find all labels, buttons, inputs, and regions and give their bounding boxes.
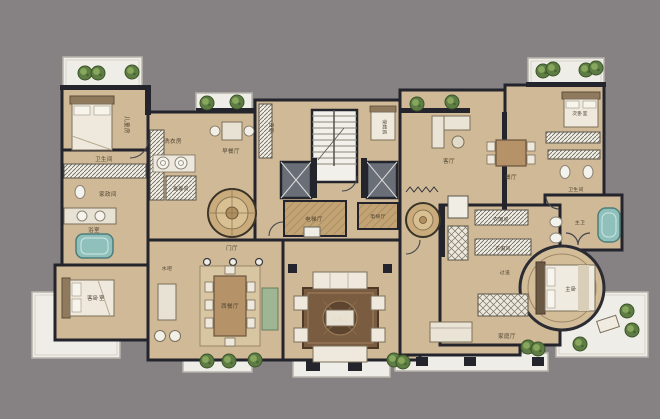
- island-icon: [158, 284, 176, 320]
- laundry-machines: [153, 155, 195, 172]
- room-label-utility: 备餐间: [173, 185, 189, 192]
- room-label-master: 主卧: [565, 285, 577, 293]
- armchair-icon: [294, 328, 308, 342]
- plant-icon: [125, 65, 139, 79]
- room-label-bath-left: 卫生间: [95, 155, 113, 163]
- chair-icon: [244, 126, 254, 136]
- armchair-icon: [294, 296, 308, 310]
- plant-icon: [78, 66, 92, 80]
- sofa-icon: [313, 272, 367, 289]
- plant-icon: [546, 62, 560, 76]
- room-label-nanny: 保姆房: [381, 119, 388, 135]
- plant-icon: [396, 355, 410, 369]
- plant-icon: [91, 66, 105, 80]
- room-label-hallway: 过道: [500, 269, 510, 276]
- stool-icon: [170, 331, 181, 342]
- room-label-bed2: 次卧室: [572, 110, 588, 117]
- buffet-icon: [262, 288, 278, 330]
- table-icon: [222, 122, 242, 140]
- bidet-icon: [550, 233, 562, 243]
- washer-icon: [157, 157, 169, 169]
- sink-icon: [95, 211, 105, 221]
- plant-icon: [620, 304, 634, 318]
- armchair-icon: [371, 296, 385, 310]
- bed-topright: [562, 92, 600, 127]
- toilet-icon: [583, 166, 593, 179]
- toilet-icon: [560, 166, 570, 179]
- room-label-bath-right: 卫生间: [568, 186, 584, 193]
- room-label-store-left: 家政间: [99, 190, 117, 198]
- side-table-icon: [452, 136, 464, 148]
- plant-icon: [625, 323, 639, 337]
- armchair-icon: [371, 328, 385, 342]
- room-label-cloak1: 衣帽间: [493, 216, 509, 223]
- room-label-dining-west: 西餐厅: [221, 302, 239, 310]
- plant-icon: [230, 95, 244, 109]
- stairwell: [312, 110, 357, 182]
- room-label-bath-spa: 浴室: [88, 226, 100, 234]
- stool-icon: [155, 331, 166, 342]
- room-label-reception: 会客厅: [331, 315, 349, 323]
- toilet-icon: [75, 186, 85, 199]
- room-label-cloak2: 衣帽间: [495, 245, 511, 252]
- plant-icon: [410, 97, 424, 111]
- plant-icon: [573, 337, 587, 351]
- room-label-master-bath: 主卫: [575, 219, 585, 226]
- floor-plan-canvas: 儿童房 卫生间 家政间 浴室 洗衣房 备餐间 早餐厅 西厨 保姆房 电梯厅 电梯…: [0, 0, 660, 419]
- storage-icon: [448, 196, 468, 218]
- bed-topleft: [70, 96, 114, 150]
- plant-icon: [445, 95, 459, 109]
- washer-icon: [175, 157, 187, 169]
- hall-medallion: [406, 203, 440, 237]
- vanity-icon: [64, 208, 116, 224]
- console-table-icon: [304, 227, 320, 237]
- room-label-lobby-left: 电梯厅: [305, 215, 323, 223]
- sink-icon: [77, 211, 87, 221]
- room-label-family: 家庭厅: [498, 332, 516, 340]
- floor-plan-drawing: 儿童房 卫生间 家政间 浴室 洗衣房 备餐间 早餐厅 西厨 保姆房 电梯厅 电梯…: [0, 0, 660, 419]
- storage-cabinet-icon: [448, 226, 468, 260]
- chair-icon: [210, 126, 220, 136]
- room-label-dining-right: 餐厅: [505, 173, 517, 181]
- dining-table-icon: [496, 140, 526, 166]
- foyer-medallion: [208, 189, 256, 237]
- plant-icon: [200, 96, 214, 110]
- plant-icon: [222, 354, 236, 368]
- room-label-lobby-right: 电梯厅: [370, 213, 386, 220]
- wardrobe-icon: [64, 164, 146, 178]
- tv-cabinet-icon: [478, 294, 528, 316]
- sofa-icon: [430, 322, 472, 342]
- room-label-guest-bed: 客卧室: [87, 294, 105, 302]
- room-label-laundry: 洗衣房: [164, 137, 182, 145]
- vanity-icon: [548, 150, 600, 159]
- toilet-icon: [550, 217, 562, 227]
- room-label-foyer: 门厅: [226, 244, 238, 252]
- room-label-west-kitchen: 西厨: [268, 123, 274, 133]
- sofa-icon: [313, 346, 367, 362]
- plant-icon: [531, 342, 545, 356]
- plant-icon: [200, 354, 214, 368]
- family-room-sofa: [430, 322, 472, 342]
- plant-icon: [248, 353, 262, 367]
- room-label-bar: 水吧: [162, 265, 172, 272]
- room-label-breakfast: 早餐厅: [222, 147, 240, 155]
- plant-icon: [589, 61, 603, 75]
- room-label-living-right: 客厅: [443, 157, 455, 165]
- room-label-kids-room: 儿童房: [123, 116, 131, 134]
- wardrobe-icon: [546, 132, 600, 143]
